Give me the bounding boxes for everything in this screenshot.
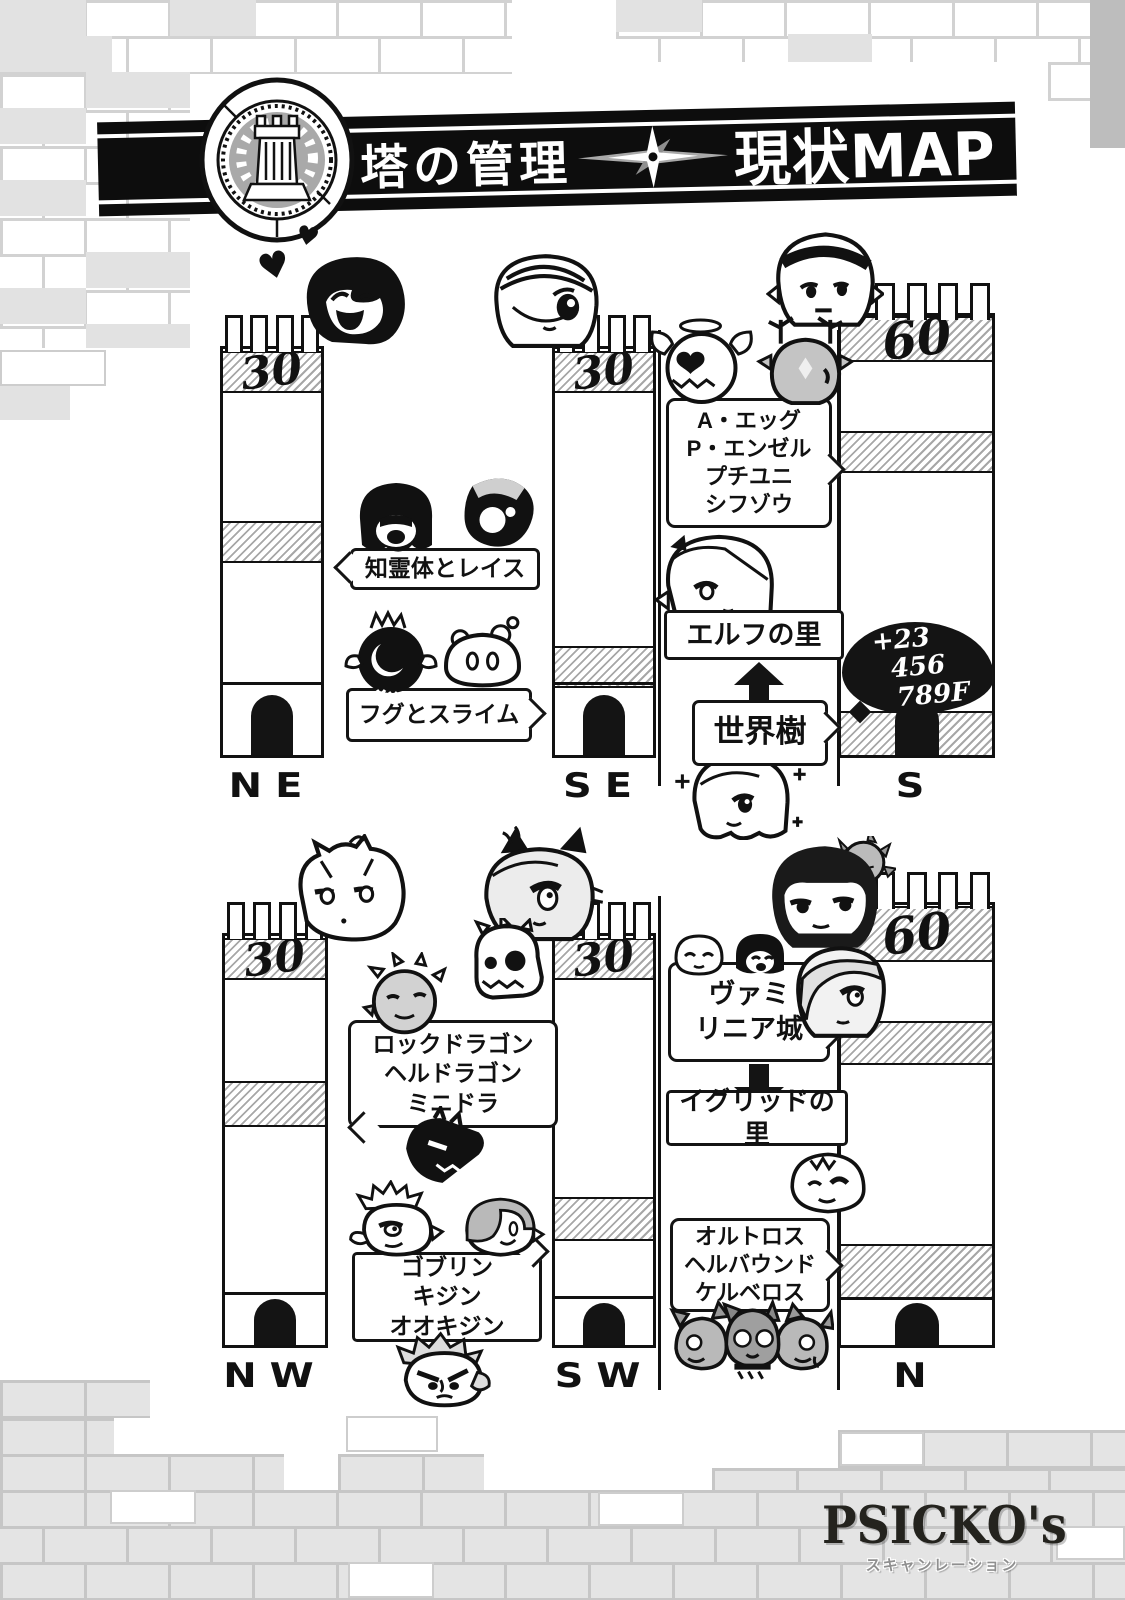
brick-accent [86, 252, 190, 288]
base-line [555, 1296, 653, 1299]
compass-icon [577, 124, 728, 189]
brick-accent [86, 324, 190, 348]
base-line [223, 682, 321, 685]
bubble-text: エルフの里 [687, 618, 822, 653]
monster-angel-egg [650, 314, 756, 406]
monster-cerberus [668, 1296, 834, 1392]
brick-accent [0, 36, 112, 72]
info-box-igrid-village: イグリッドの里 [666, 1090, 848, 1146]
info-box-egg-group: A・エッグ P・エンゼル プチユニ シフゾウ [666, 398, 832, 528]
brick-border-bottom [338, 1454, 484, 1490]
bubble-text: 知霊体とレイス [365, 554, 525, 583]
floor-band: 30 [555, 351, 653, 393]
page-title: 塔の管理 [359, 124, 573, 199]
direction-label-ne: NE [216, 766, 328, 806]
direction-label-nw: NW [218, 1356, 332, 1396]
brick-stray [0, 386, 70, 420]
base-line [555, 682, 653, 685]
bubble-text: ヘルドラゴン [384, 1059, 522, 1088]
direction-label-s: S [832, 766, 1002, 806]
monster-deer [752, 314, 858, 408]
bubble-text: 世界樹 [714, 713, 807, 753]
brick-accent [616, 0, 702, 32]
brick-accent [86, 72, 190, 108]
brick-accent [788, 34, 872, 62]
brick-stray [0, 350, 106, 386]
credit-group-name: PSICKO's [822, 1495, 1062, 1555]
tower-nw: 30 [222, 933, 328, 1348]
monster-rock-dragon [356, 952, 452, 1040]
brick-border-bottom [0, 1380, 150, 1418]
base-line [841, 1297, 992, 1300]
floor-number: 30 [571, 346, 637, 397]
direction-label-sw: SW [548, 1356, 660, 1396]
bubble-text: ヘルバウンド [684, 1251, 816, 1279]
brick-border-bottom [0, 1454, 284, 1490]
bubble-text: フグとスライム [359, 700, 520, 729]
manga-map-page: 塔の管理 現状MAP [0, 0, 1125, 1600]
brick-accent [0, 108, 86, 144]
brick-accent [0, 0, 86, 36]
character-silver-hair-girl [784, 934, 896, 1046]
direction-label-se: SE [548, 766, 660, 806]
bubble-text: プチユニ [705, 463, 793, 491]
tone-band [555, 1197, 653, 1241]
tower-door [251, 695, 293, 755]
monster-ogre [386, 1324, 502, 1416]
tower-ne: 30 [220, 346, 324, 758]
brick-accent [110, 1490, 196, 1524]
bubble-text: シフゾウ [705, 491, 793, 519]
bubble-text: ヴァミ [709, 977, 790, 1012]
bubble-text: キジン [413, 1282, 482, 1311]
tone-band [841, 431, 992, 473]
scanlation-credit: PSICKO's スキャンレーション [822, 1498, 1062, 1575]
character-laughing-girl [290, 248, 414, 348]
brick-accent [170, 0, 256, 36]
tone-band [223, 521, 321, 563]
brick-accent [346, 1416, 438, 1452]
brick-accent [0, 180, 86, 216]
bubble-text: A・エッグ [697, 407, 801, 435]
monster-hell-dragon [452, 918, 554, 1018]
speech-bubble-world-tree: 世界樹 [692, 700, 828, 766]
monster-wraith [446, 472, 542, 554]
character-small-black-hair [728, 926, 792, 978]
tone-band [841, 1244, 992, 1300]
brick-accent-dark [1090, 0, 1125, 148]
character-spirit-girl [350, 474, 442, 556]
tone-band [225, 1081, 325, 1127]
tower-sw: 30 [552, 933, 656, 1348]
direction-label-n: N [832, 1356, 1002, 1396]
tower-crest-icon [198, 76, 356, 244]
brick-border-bottom [0, 1418, 114, 1454]
info-box-elf-village: エルフの里 [664, 610, 844, 660]
monster-kijin [452, 1188, 548, 1264]
credit-label: スキャンレーション [866, 1554, 1019, 1575]
floor-count-line: 789F [896, 679, 971, 713]
character-headband-girl [482, 246, 610, 350]
tower-door [583, 695, 625, 755]
brick-accent [0, 288, 86, 324]
tower-door [254, 1299, 296, 1345]
bubble-text: P・エンゼル [687, 435, 812, 463]
heart-icon: ♥ [254, 243, 295, 291]
monster-fugu [340, 608, 442, 698]
character-small-blonde [668, 928, 730, 980]
character-spiky-hair-boy [284, 834, 418, 946]
tower-door [895, 1303, 939, 1345]
brick-accent [840, 1432, 924, 1466]
monster-slime [434, 612, 530, 694]
brick-accent [348, 1562, 434, 1598]
monster-goblin [344, 1180, 450, 1268]
floor-band: 30 [223, 351, 321, 393]
base-line [225, 1292, 325, 1295]
brick-accent [598, 1492, 684, 1526]
tower-se: 30 [552, 346, 656, 758]
bubble-text: イグリッドの里 [669, 1085, 845, 1152]
tower-door [583, 1303, 625, 1345]
floor-number: 30 [239, 346, 305, 397]
character-tiara-girl [782, 1146, 874, 1220]
bubble-text: オルトロス [695, 1223, 805, 1251]
